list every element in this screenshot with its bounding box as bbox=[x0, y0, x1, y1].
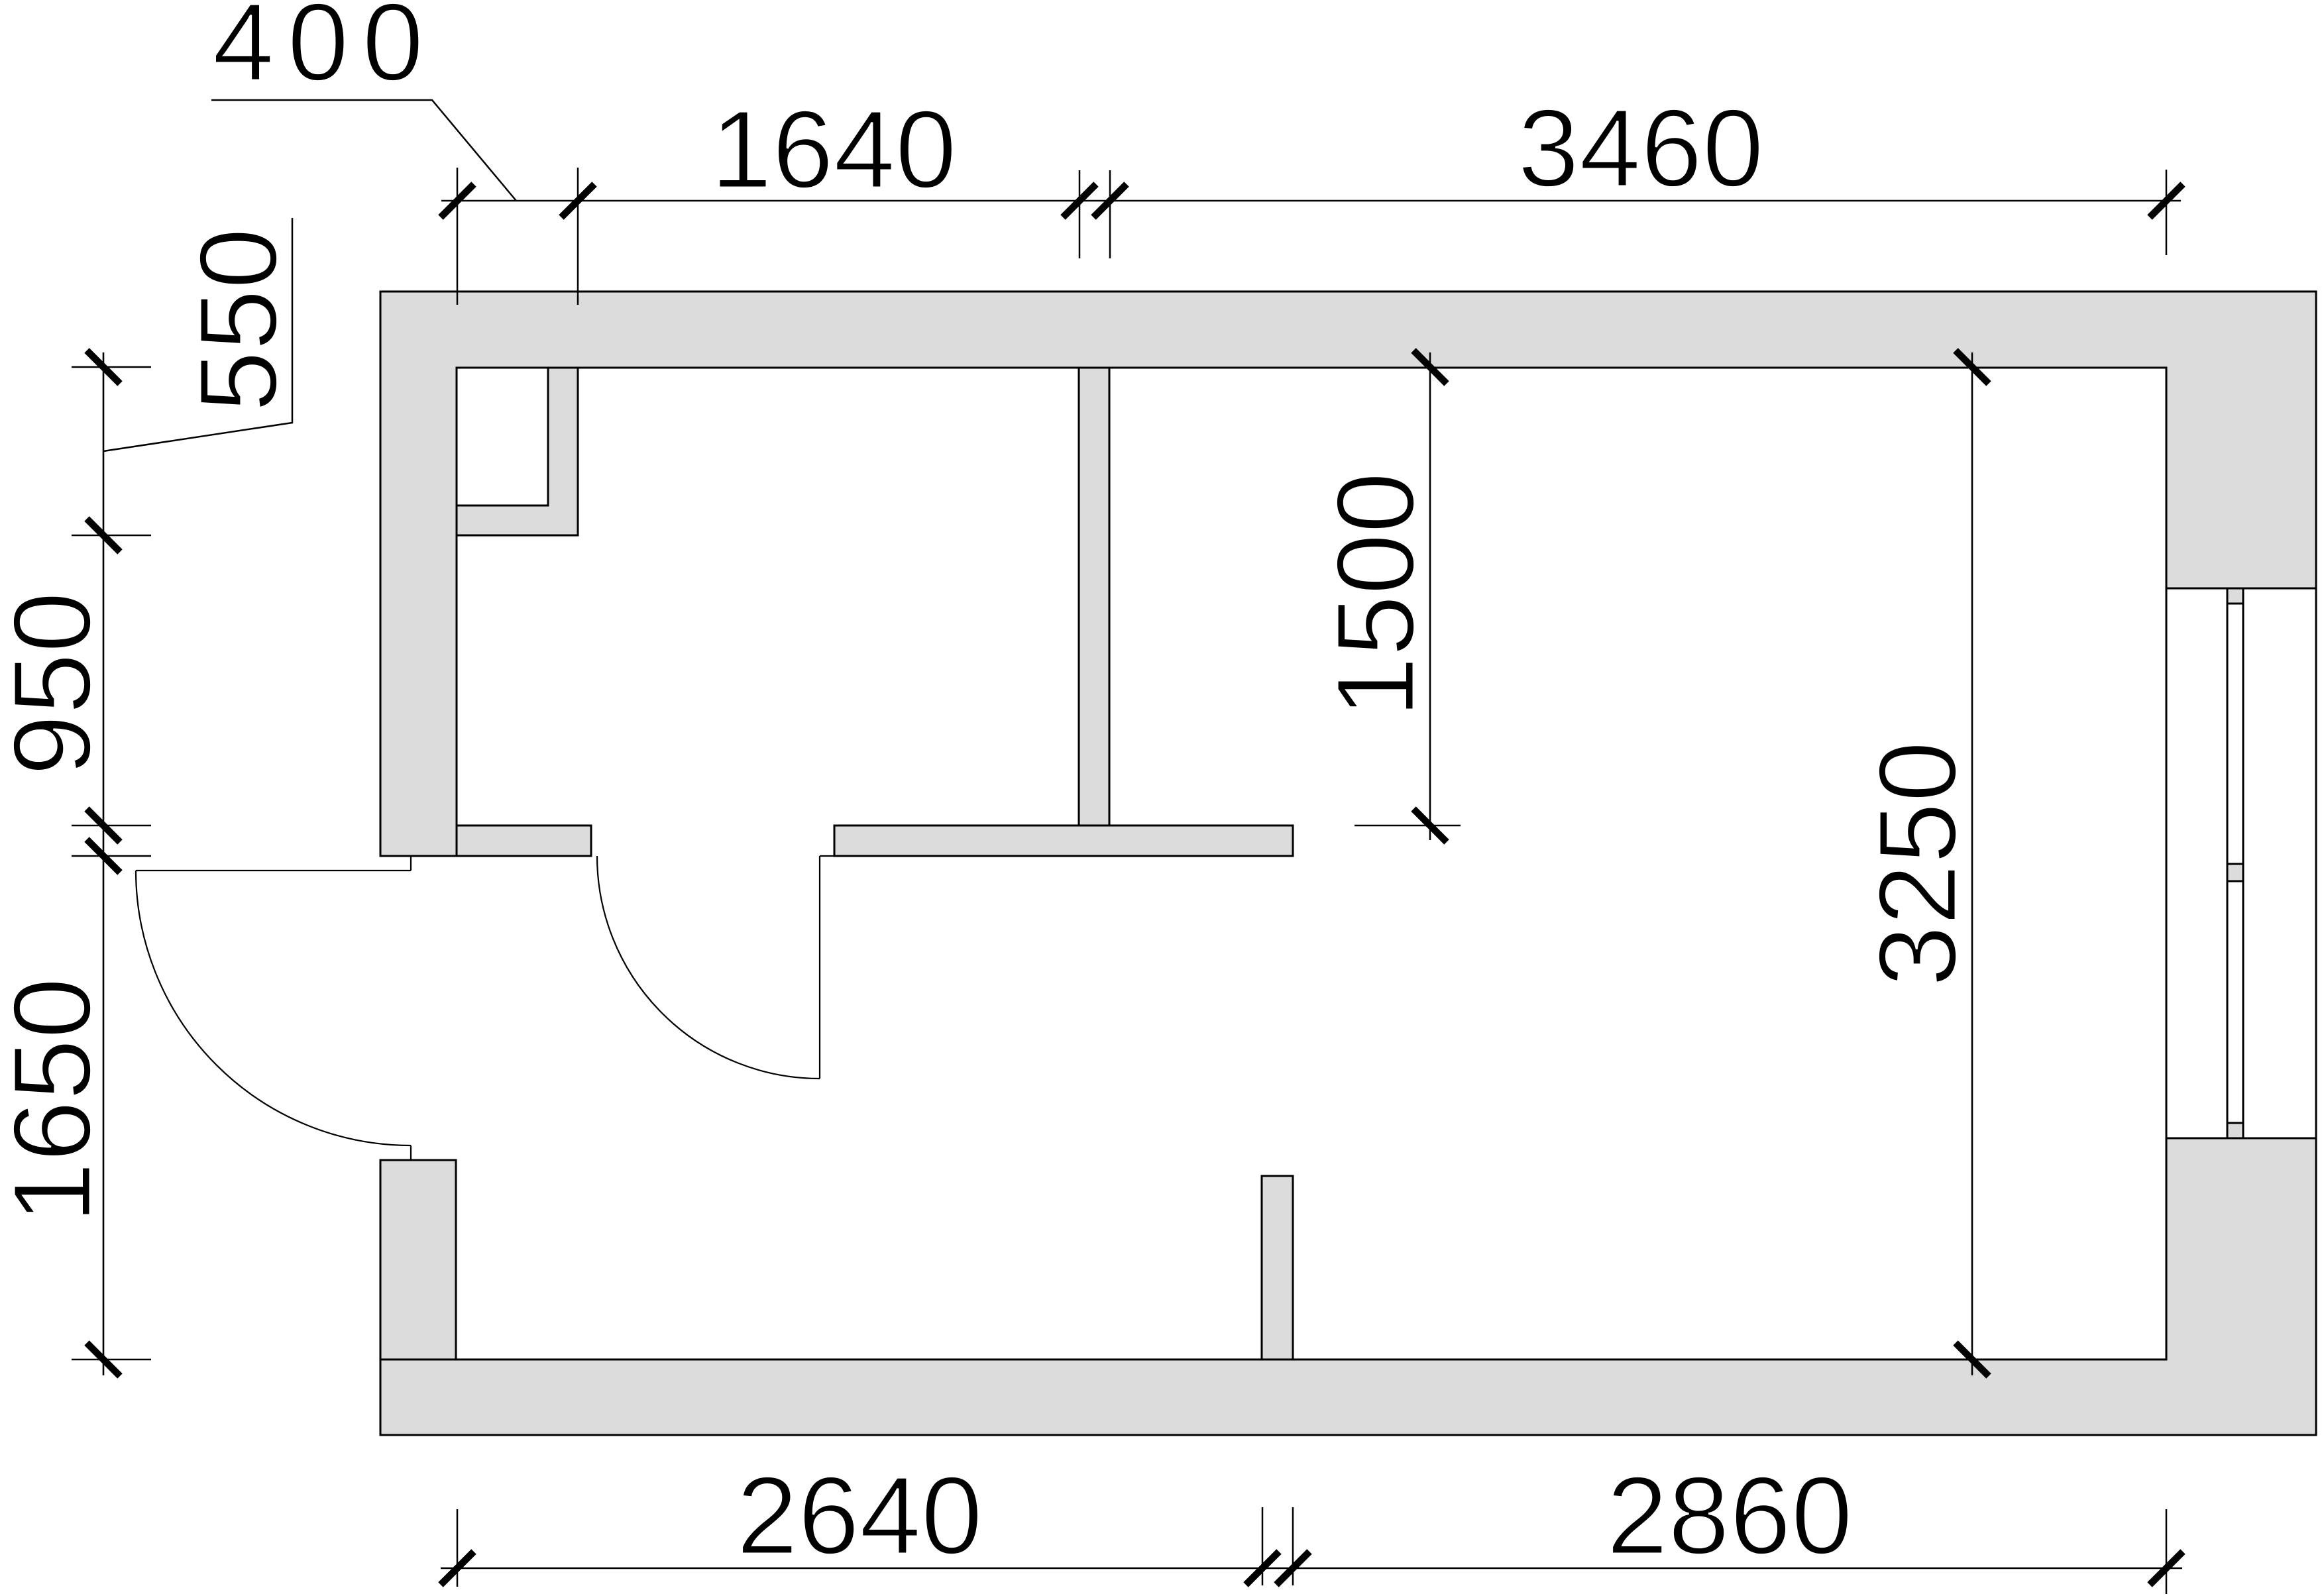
svg-text:550: 550 bbox=[177, 228, 300, 413]
svg-text:3250: 3250 bbox=[1856, 741, 1979, 987]
svg-text:3460: 3460 bbox=[1518, 87, 1764, 210]
svg-text:400: 400 bbox=[213, 0, 437, 104]
svg-text:2640: 2640 bbox=[736, 1454, 983, 1577]
svg-text:1640: 1640 bbox=[710, 88, 957, 211]
svg-text:1650: 1650 bbox=[0, 977, 114, 1224]
svg-text:950: 950 bbox=[0, 592, 114, 776]
svg-text:2860: 2860 bbox=[1606, 1454, 1853, 1577]
svg-text:1500: 1500 bbox=[1314, 472, 1437, 718]
